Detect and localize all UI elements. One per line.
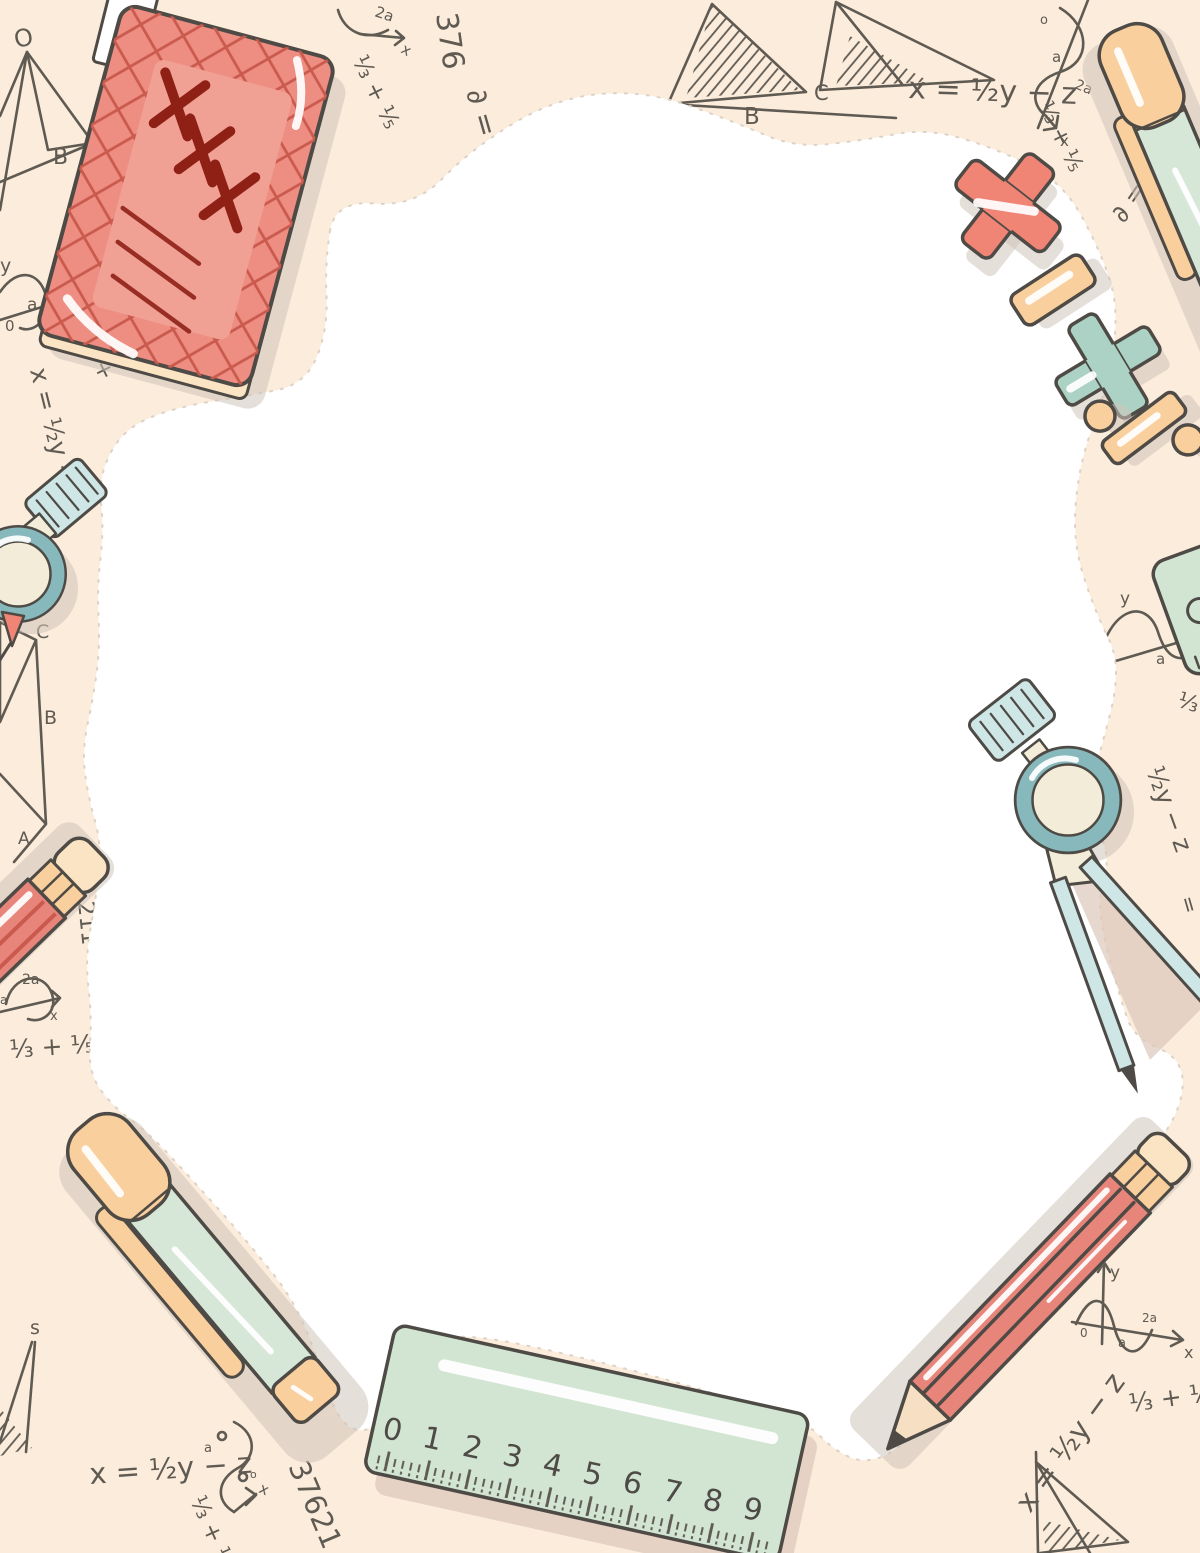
label-doodle: a [1156, 650, 1165, 668]
label-doodle: C [814, 81, 829, 105]
label-doodle: y [0, 255, 11, 277]
label-doodle: x [1184, 1343, 1193, 1362]
label-doodle: B [53, 145, 68, 170]
label-doodle: a [1052, 48, 1061, 66]
label-doodle: B [744, 104, 760, 130]
label-doodle: x [50, 1009, 58, 1024]
label-doodle: 2a [1142, 1311, 1157, 1325]
label-doodle: y [1120, 589, 1130, 609]
label-doodle: a [0, 993, 7, 1007]
label-doodle: 0 [1080, 1326, 1088, 1340]
label-doodle: 2a [22, 972, 40, 988]
label-doodle: A [18, 829, 30, 849]
label-doodle: B [44, 707, 57, 729]
label-doodle: a [27, 295, 37, 315]
label-doodle: o [250, 1468, 257, 1481]
label-doodle: o [1040, 13, 1048, 28]
label-doodle: 0 [5, 317, 15, 335]
math-border-illustration: O B y a 0 ⅓ + x = ½y − z 2a x ⅓ + ⅕ 376 … [0, 0, 1200, 1553]
label-doodle: s [30, 1317, 40, 1339]
label-doodle: y [1110, 1263, 1120, 1283]
label-doodle: a [204, 1441, 212, 1456]
formula-doodle: ⅓ + ⅕ [8, 1029, 95, 1064]
label-doodle: a [1118, 1336, 1126, 1351]
